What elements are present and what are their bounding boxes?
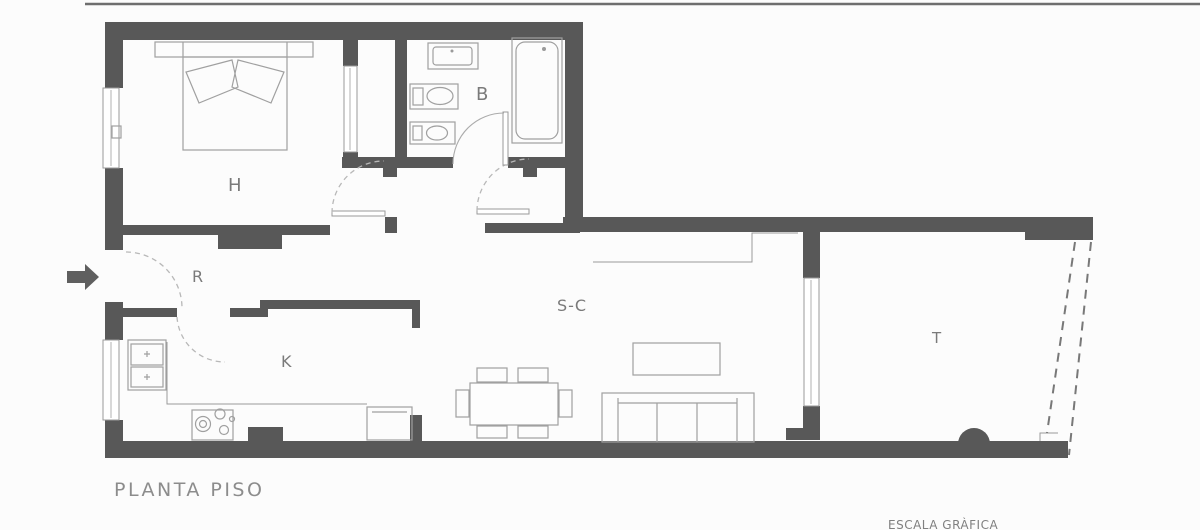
chair (518, 368, 548, 382)
wall-terrace-step (786, 428, 803, 440)
wall-kitchen-top-stub (412, 300, 420, 328)
wall-corridor-top (342, 157, 453, 168)
wall-left-upper (105, 22, 123, 88)
room-label-bedroom: H (228, 175, 242, 196)
wall-jamb-corridor-door (523, 168, 537, 177)
chair (477, 426, 507, 438)
wall-bedroom-bottom (105, 225, 330, 235)
wall-top-right-section (563, 217, 1093, 232)
bathroom-door-arc (453, 113, 504, 164)
walls-layer (105, 22, 1093, 458)
kitchen-sink (128, 340, 166, 390)
bathtub (512, 38, 562, 143)
plan-title: PLANTA PISO (114, 479, 264, 501)
labels-layer: H B R K S-C T PLANTA PISO ESCALA GRÀFICA (114, 84, 998, 530)
living-ledge (593, 233, 798, 262)
wall-kitchen-top (268, 300, 412, 309)
chair (518, 426, 548, 438)
chair (456, 390, 469, 417)
wall-duct-block (218, 233, 282, 249)
wall-hall-kitchen-left (123, 308, 177, 317)
kitchen-door-arc (177, 317, 225, 362)
wall-bottom (105, 441, 1068, 458)
terrace-step-line (1040, 433, 1058, 441)
wall-closet-top (343, 40, 358, 66)
dining-table-set (456, 368, 572, 438)
floor-plan-svg: H B R K S-C T PLANTA PISO ESCALA GRÀFICA (0, 0, 1200, 530)
bed (155, 42, 313, 150)
entry-arrow-icon (67, 264, 99, 290)
terrace-open-edge-outer (1069, 242, 1091, 455)
room-label-living-dining: S-C (557, 296, 587, 315)
kitchen-counter (167, 342, 367, 404)
room-label-terrace: T (931, 329, 942, 347)
wall-terrace-top-end (1025, 228, 1093, 240)
room-label-bathroom: B (476, 84, 488, 105)
terrace-column (958, 428, 990, 444)
room-label-kitchen: K (281, 352, 292, 371)
wall-hall-kitchen-step (260, 300, 268, 317)
coffee-table (633, 343, 720, 375)
room-label-hall: R (192, 267, 203, 286)
terrace-open-edge-inner (1047, 242, 1075, 433)
chair (559, 390, 572, 417)
wall-right-column (565, 22, 583, 232)
wall-top (105, 22, 583, 40)
wall-terrace-left-upper (803, 223, 820, 278)
pillow-left (186, 60, 238, 103)
bathroom-door-leaf (503, 112, 508, 165)
chair (477, 368, 507, 382)
bedroom-door-leaf (332, 211, 385, 216)
entry-door-arc (126, 252, 182, 308)
wall-left-mid (105, 168, 123, 250)
kitchen-appliance (367, 407, 412, 440)
windows-layer (103, 66, 819, 420)
wall-hall-kitchen-mid (230, 308, 260, 317)
sofa (602, 393, 754, 442)
washbasin (428, 43, 478, 69)
wall-bath-left (395, 40, 407, 157)
wall-kitchen-stub-1 (248, 427, 283, 441)
corridor-door-leaf (477, 209, 529, 214)
floor-plan-page: H B R K S-C T PLANTA PISO ESCALA GRÀFICA (0, 0, 1200, 530)
wall-stub-corridor (383, 168, 397, 177)
wall-terrace-left-lower (803, 406, 820, 440)
pillow-right (232, 60, 284, 103)
toilet (410, 84, 458, 109)
bedroom-door-arc (332, 161, 384, 213)
wall-jamb-bedroom-door (385, 217, 397, 233)
bidet (410, 122, 455, 144)
wall-left-lower (105, 302, 123, 340)
stove (192, 409, 235, 440)
scale-caption: ESCALA GRÀFICA (888, 517, 998, 530)
dining-table (470, 383, 558, 425)
